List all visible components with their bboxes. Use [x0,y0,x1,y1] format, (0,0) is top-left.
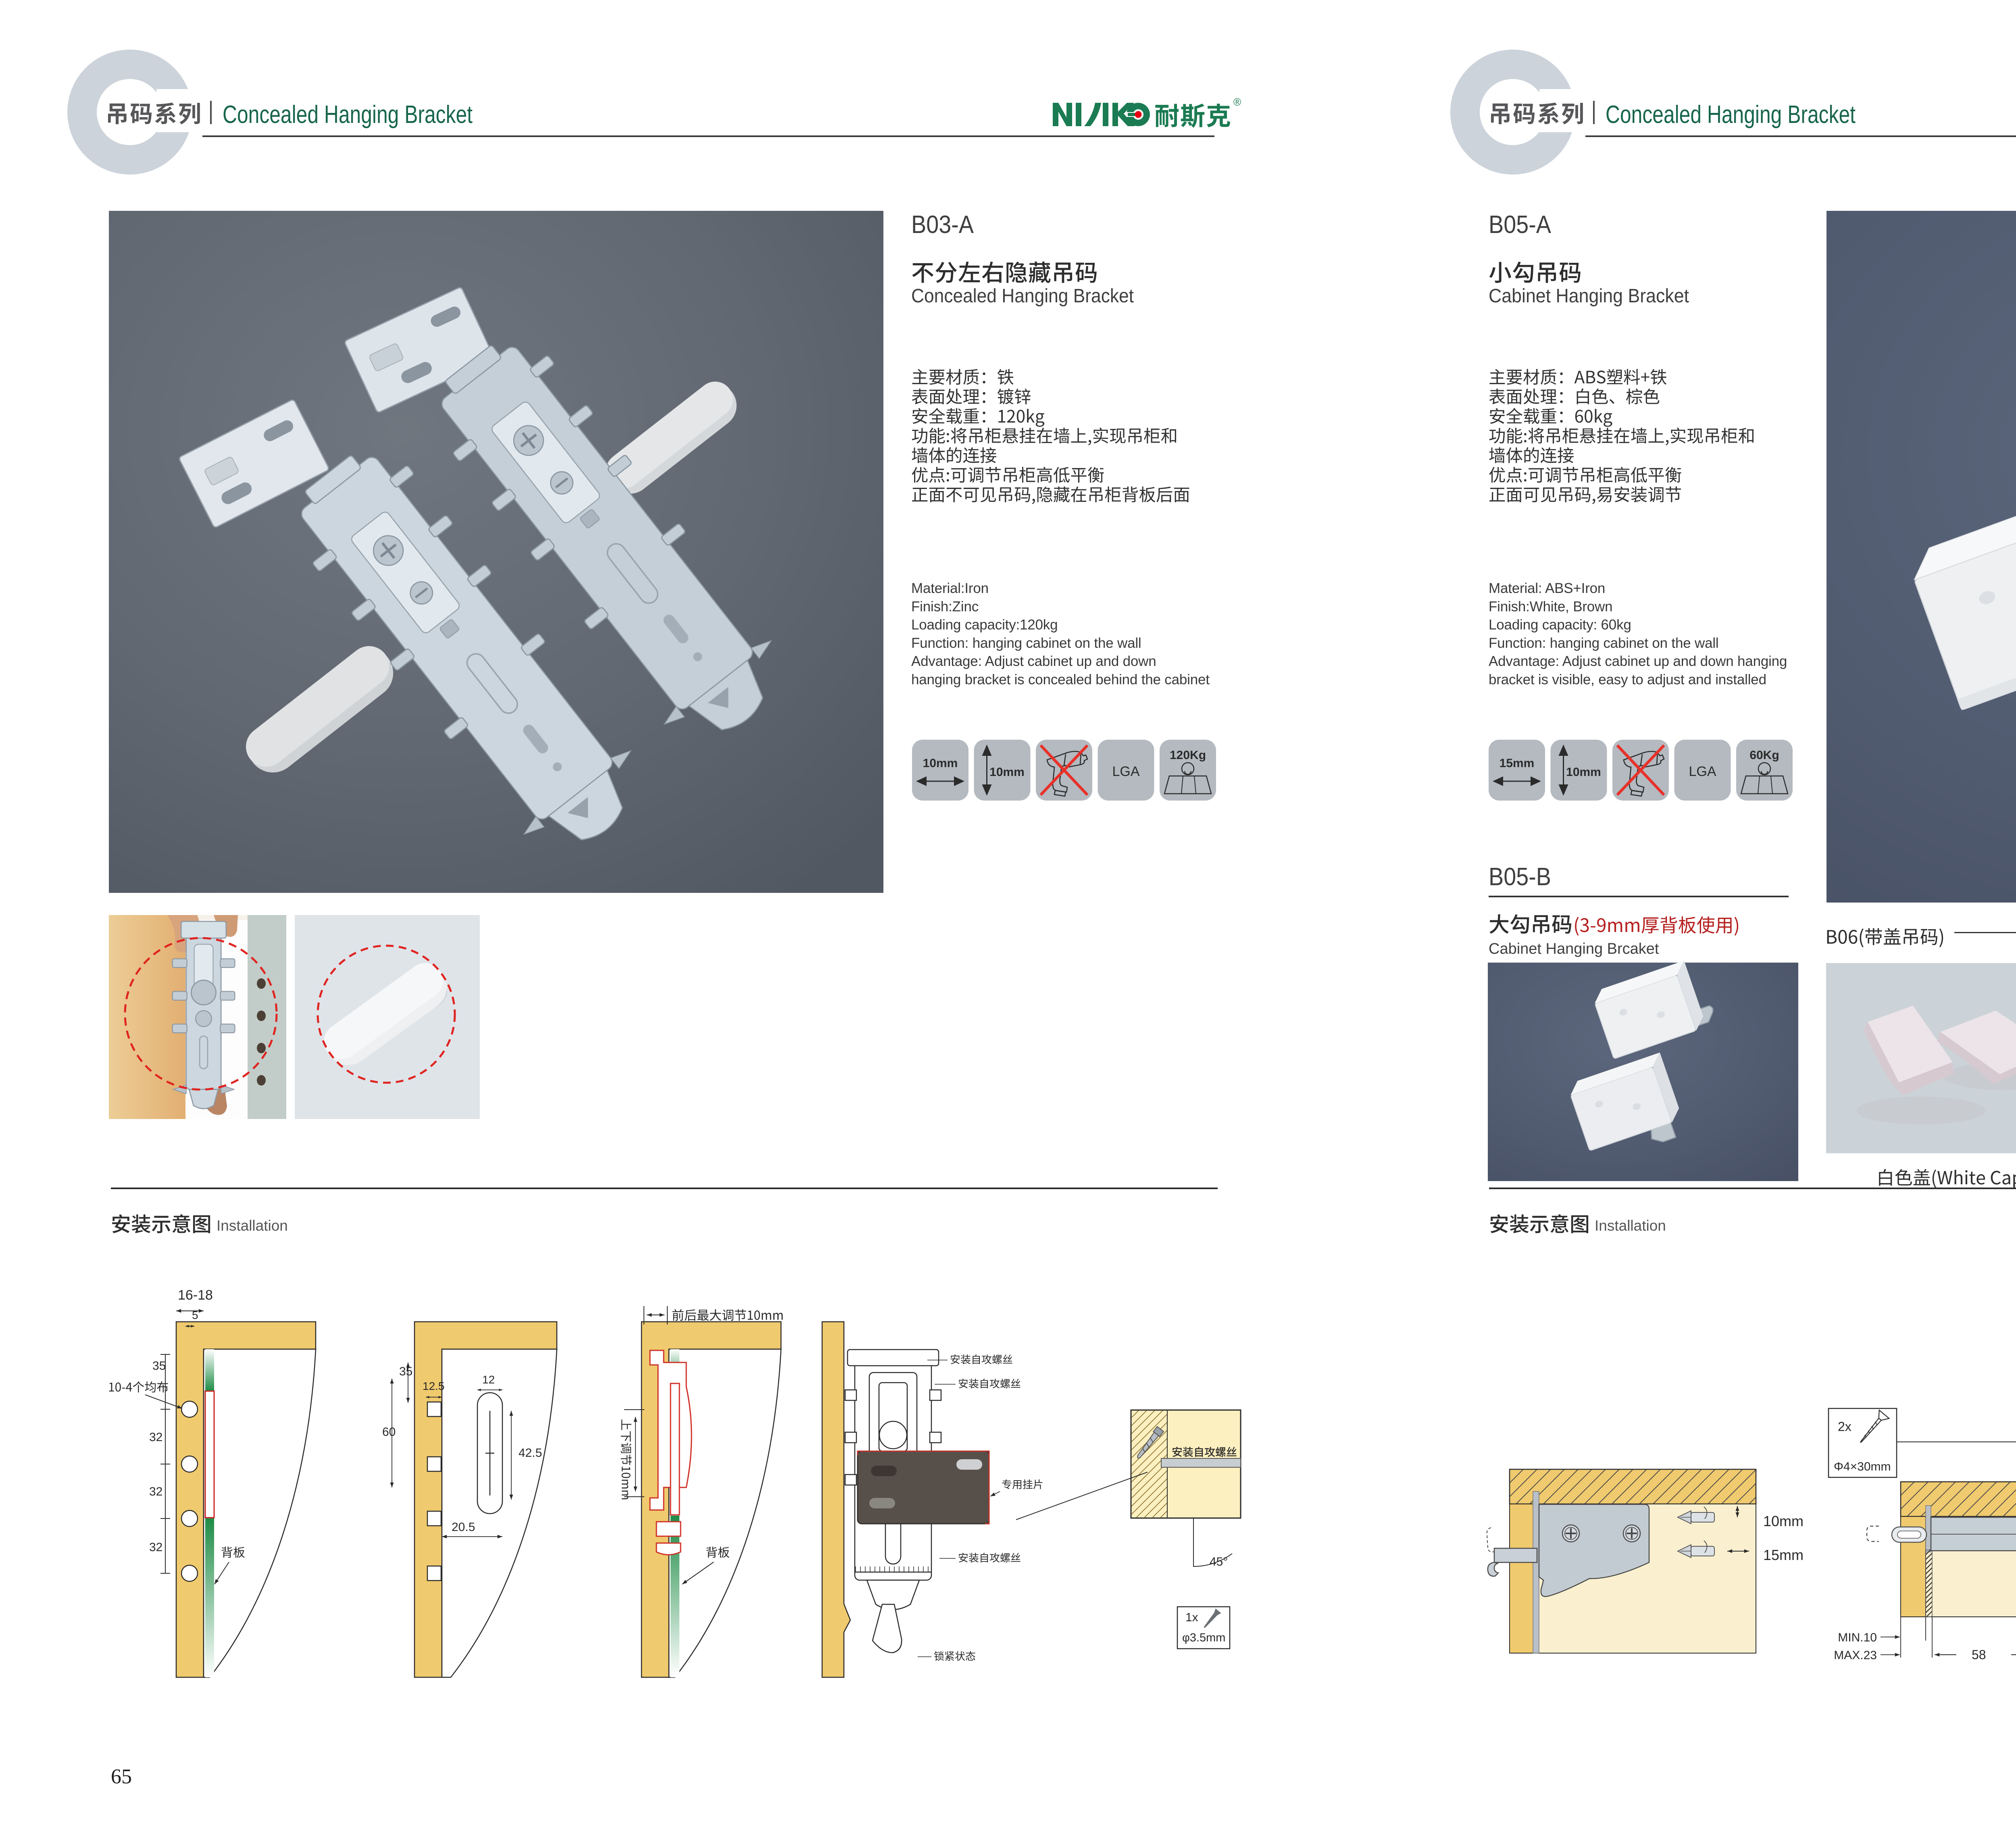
svg-text:10mm: 10mm [989,765,1025,779]
svg-text:20.5: 20.5 [452,1520,475,1534]
svg-text:LGA: LGA [1689,764,1716,779]
svg-text:1x: 1x [1185,1611,1198,1624]
svg-text:60Kg: 60Kg [1749,749,1779,762]
svg-text:Loading capacity: 60kg: Loading capacity: 60kg [1489,617,1631,633]
svg-text:Material: ABS+Iron: Material: ABS+Iron [1489,580,1605,596]
svg-text:LGA: LGA [1112,764,1139,779]
svg-text:2x: 2x [1838,1419,1851,1434]
svg-text:16-18: 16-18 [178,1287,213,1303]
svg-text:Installation: Installation [217,1217,288,1234]
svg-text:10mm: 10mm [923,757,958,770]
svg-text:12.5: 12.5 [423,1380,445,1392]
svg-text:MAX.23: MAX.23 [1834,1649,1877,1662]
svg-text:Loading capacity:120kg: Loading capacity:120kg [911,617,1058,633]
svg-text:Advantage: Adjust cabinet up a: Advantage: Adjust cabinet up and down [911,653,1156,669]
svg-text:Φ4×30mm: Φ4×30mm [1834,1460,1891,1473]
svg-text:Cabinet Hanging Bracket: Cabinet Hanging Bracket [1489,285,1689,307]
svg-text:Concealed Hanging Bracket: Concealed Hanging Bracket [223,101,473,129]
svg-text:5: 5 [192,1309,198,1321]
svg-text:32: 32 [149,1431,162,1444]
svg-text:Installation: Installation [1595,1217,1666,1234]
svg-text:35: 35 [152,1359,166,1373]
svg-text:10mm: 10mm [1763,1513,1804,1529]
svg-text:15mm: 15mm [1500,757,1535,770]
svg-text:35: 35 [399,1365,412,1378]
svg-text:Material:Iron: Material:Iron [911,580,989,596]
svg-text:120Kg: 120Kg [1170,749,1206,762]
svg-text:42.5: 42.5 [519,1446,542,1460]
svg-text:Cabinet Hanging Brcaket: Cabinet Hanging Brcaket [1489,940,1659,957]
svg-text:B05-B: B05-B [1489,863,1551,891]
svg-text:Advantage: Adjust cabinet up a: Advantage: Adjust cabinet up and down ha… [1489,653,1787,669]
svg-text:10mm: 10mm [1566,765,1601,779]
svg-text:Concealed Hanging Bracket: Concealed Hanging Bracket [1606,101,1856,129]
svg-text:®: ® [1233,96,1241,108]
svg-text:Function: hanging cabinet on t: Function: hanging cabinet on the wall [911,635,1141,651]
svg-text:hanging bracket is concealed b: hanging bracket is concealed behind the … [911,672,1210,688]
svg-text:MIN.10: MIN.10 [1838,1631,1877,1644]
svg-text:Concealed Hanging Bracket: Concealed Hanging Bracket [911,285,1134,307]
svg-text:12: 12 [482,1373,495,1386]
svg-text:32: 32 [149,1541,162,1554]
svg-text:B05-A: B05-A [1489,211,1552,239]
svg-text:B03-A: B03-A [911,211,974,239]
svg-text:φ3.5mm: φ3.5mm [1182,1631,1225,1644]
svg-text:45°: 45° [1210,1555,1228,1568]
svg-text:Function: hanging cabinet on t: Function: hanging cabinet on the wall [1489,635,1719,651]
svg-text:15mm: 15mm [1763,1547,1804,1563]
svg-text:60: 60 [382,1425,396,1439]
svg-text:65: 65 [111,1765,132,1788]
svg-text:58: 58 [1972,1647,1986,1662]
svg-text:bracket is visible, easy to ad: bracket is visible, easy to adjust and i… [1489,672,1766,688]
svg-text:Finish:White, Brown: Finish:White, Brown [1489,599,1612,614]
svg-text:32: 32 [149,1485,162,1498]
svg-text:Finish:Zinc: Finish:Zinc [911,599,979,614]
